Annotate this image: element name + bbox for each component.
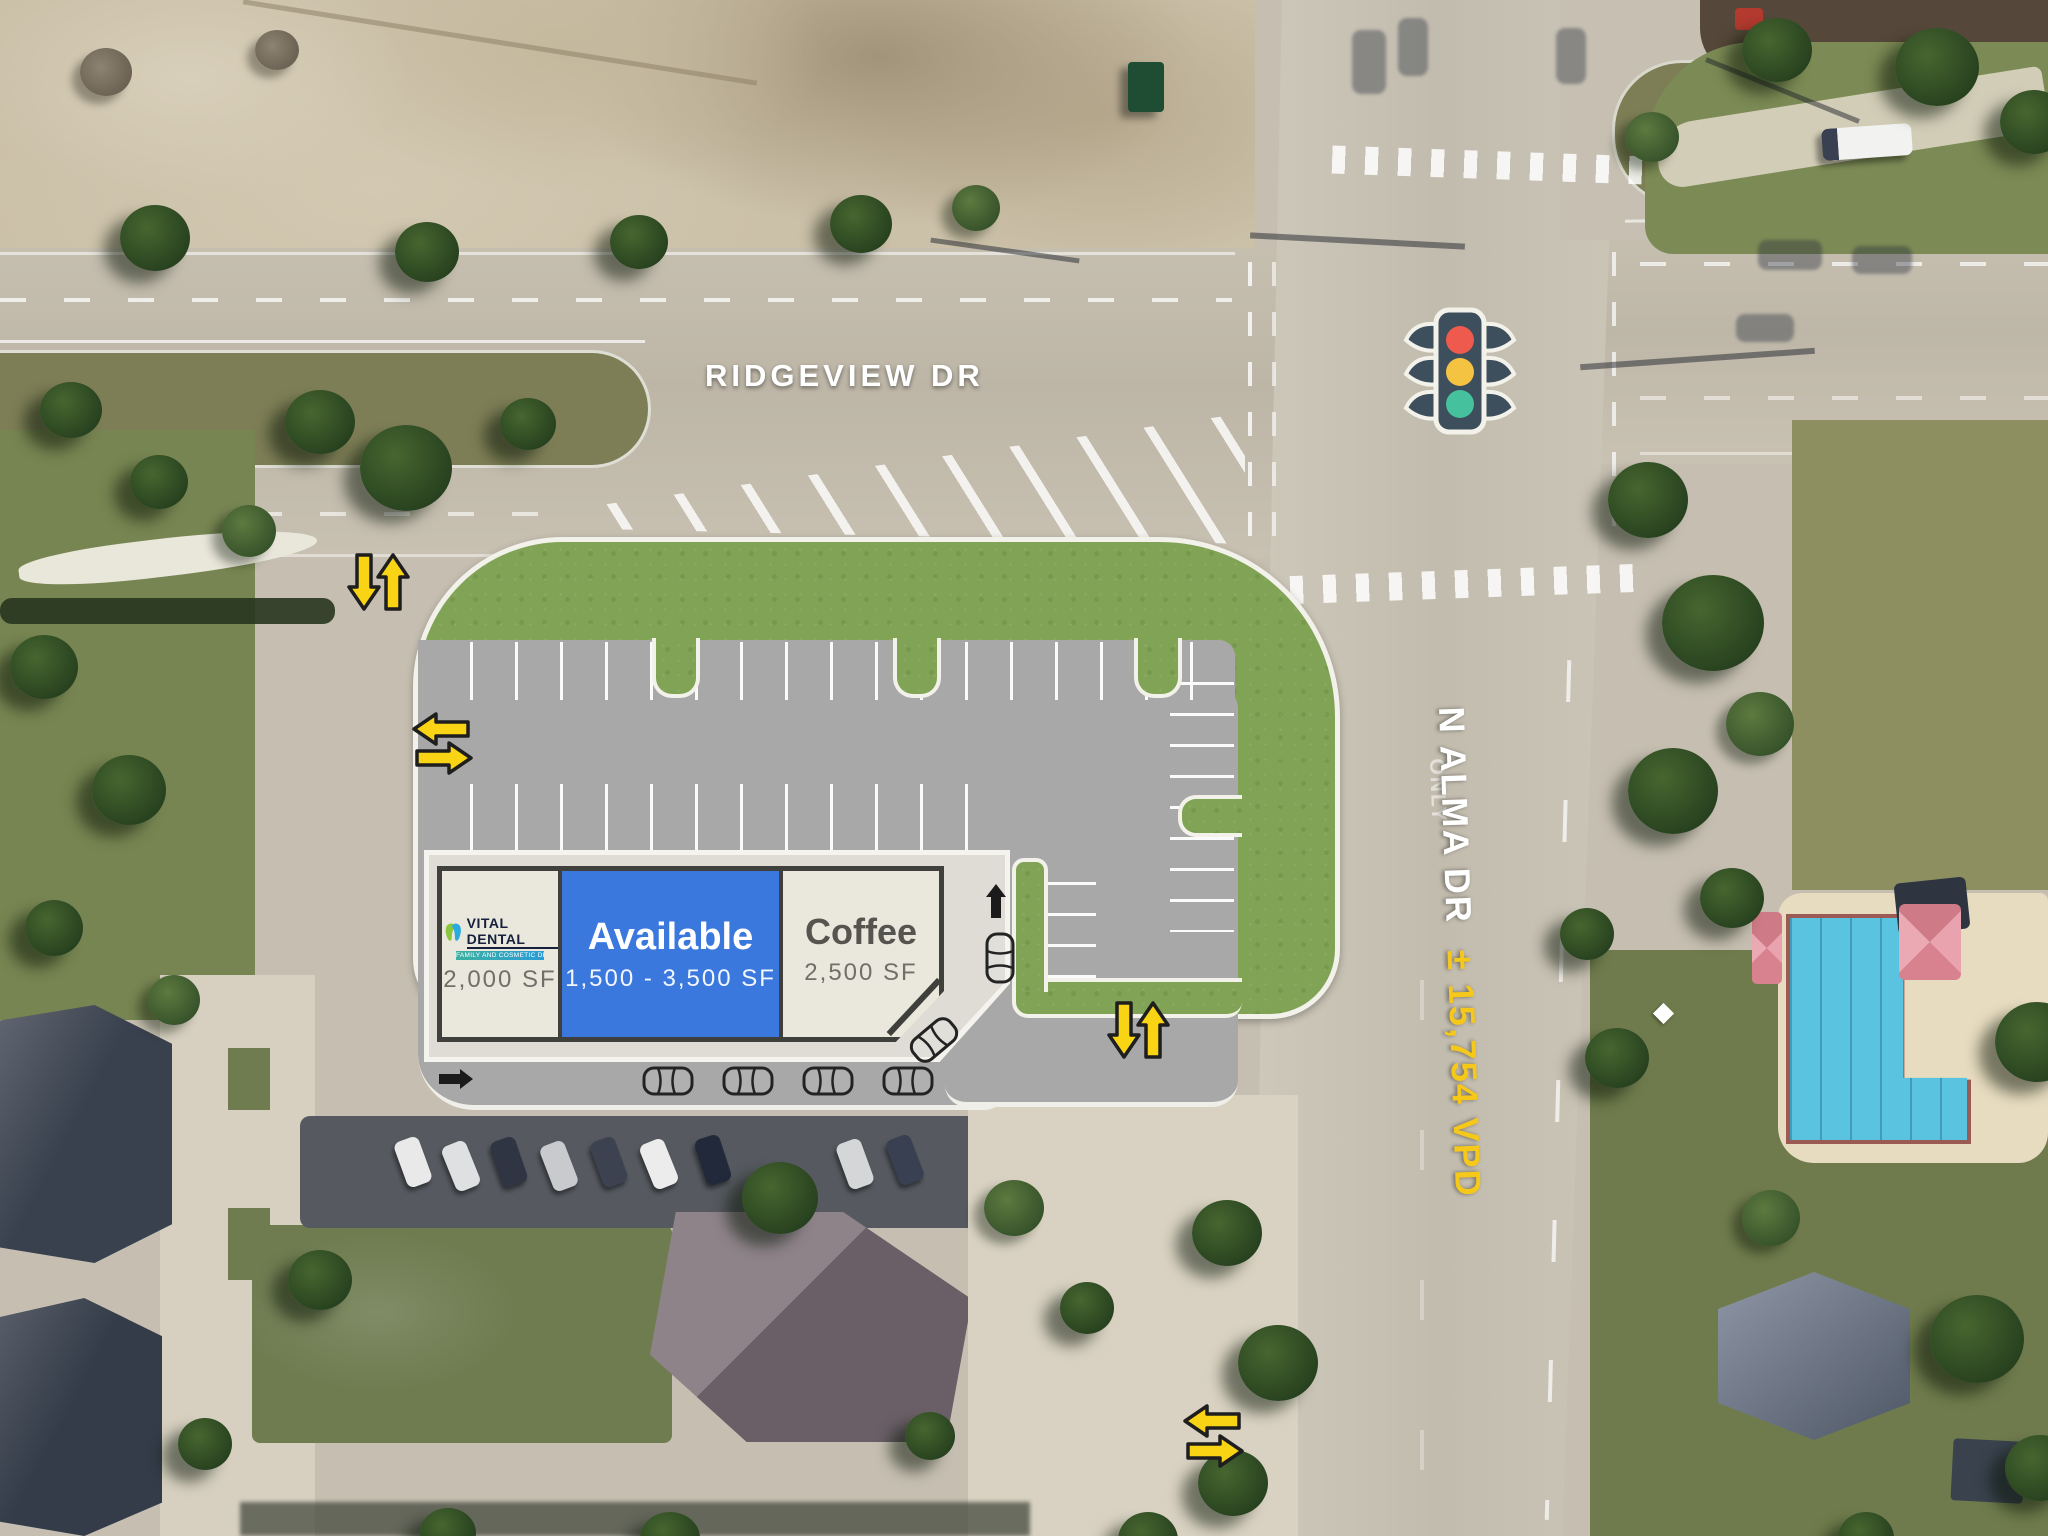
signal-red-light — [1446, 326, 1474, 354]
icon-overlay — [0, 0, 2048, 1536]
access-arrows-southeast-aisle — [1109, 1003, 1168, 1057]
drive-lane-arrow — [439, 1069, 473, 1089]
access-arrows-west-aisle — [414, 714, 471, 773]
drive-lane-car — [724, 1068, 772, 1094]
drive-lane-car — [884, 1068, 932, 1094]
access-arrows-south-driveway — [1185, 1406, 1242, 1466]
drive-lane-car — [804, 1068, 852, 1094]
drive-thru-arrow — [986, 884, 1006, 918]
signal-green-light — [1446, 390, 1474, 418]
drive-lane-car — [644, 1068, 692, 1094]
access-arrows-ridgeview-driveway — [349, 555, 408, 609]
drive-thru-car — [987, 934, 1013, 982]
traffic-light-icon — [1406, 310, 1514, 432]
drive-thru-car — [907, 1015, 960, 1066]
aerial-site-plan: ONLY — [0, 0, 2048, 1536]
signal-amber-light — [1446, 358, 1474, 386]
